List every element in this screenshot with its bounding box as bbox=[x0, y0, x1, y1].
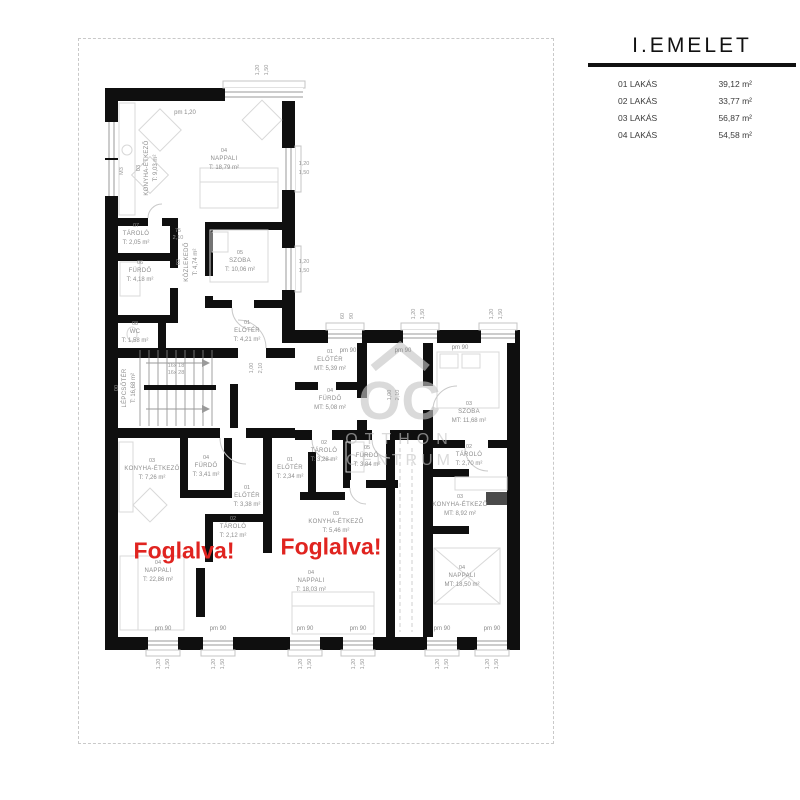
room-label: 03KONYHA-ÉTKEZŐT: 9,03 m² bbox=[136, 140, 160, 195]
room-area: T: 16,68 m² bbox=[130, 368, 138, 407]
room-name: SZOBA bbox=[225, 258, 255, 266]
legend-rows: 01 LAKÁS 39,12 m² 02 LAKÁS 33,77 m² 03 L… bbox=[588, 75, 796, 143]
room-id: 01 bbox=[277, 457, 304, 464]
room-id: 08 bbox=[122, 321, 149, 328]
room-area: T: 3,41 m² bbox=[193, 471, 220, 479]
dimension-label: 1,50 bbox=[498, 309, 504, 320]
room-area: T: 2,34 m² bbox=[277, 473, 304, 481]
room-id: 03 bbox=[452, 401, 487, 408]
dimension-label: 1,00 bbox=[249, 363, 255, 374]
room-label: 02TÁROLÓT: 2,12 m² bbox=[220, 516, 247, 540]
dimension-label: 1,50 bbox=[220, 659, 226, 670]
room-area: T: 22,86 m² bbox=[143, 576, 173, 584]
dimension-label: 90 bbox=[349, 313, 355, 319]
room-area: T: 10,06 m² bbox=[225, 266, 255, 274]
room-id: 02 bbox=[311, 440, 338, 447]
dimension-label: 1,50 bbox=[420, 309, 426, 320]
parapet-label: pm 90 bbox=[395, 348, 412, 354]
room-label: 06FÜRDŐT: 4,18 m² bbox=[127, 260, 154, 284]
dimension-label: 1,20 bbox=[489, 309, 495, 320]
dimension-label: 1,50 bbox=[307, 659, 313, 670]
parapet-label: pm 90 bbox=[434, 626, 451, 632]
room-label: 02KÖZLEKEDŐT: 4,74 m² bbox=[176, 242, 200, 281]
dimension-label: 2,10 bbox=[395, 390, 401, 401]
room-area: T: 2,70 m² bbox=[456, 460, 483, 468]
room-name: FÜRDŐ bbox=[193, 463, 220, 471]
apartment-label: 04 LAKÁS bbox=[618, 130, 657, 140]
room-id: 04 bbox=[296, 570, 326, 577]
room-area: MT: 5,08 m² bbox=[314, 404, 346, 412]
room-label: 04FÜRDŐMT: 5,08 m² bbox=[314, 388, 346, 412]
room-id: 02 bbox=[456, 444, 483, 451]
room-area: MT: 8,92 m² bbox=[432, 510, 487, 518]
dimension-label: 1,50 bbox=[444, 659, 450, 670]
room-area: T: 18,79 m² bbox=[209, 164, 239, 172]
room-label: 08WCT: 1,58 m² bbox=[122, 321, 149, 345]
parapet-label: pm 90 bbox=[210, 626, 227, 632]
room-area: T: 1,58 m² bbox=[122, 337, 149, 345]
dimension-label: 1,20 bbox=[411, 309, 417, 320]
parapet-label: pm 90 bbox=[155, 626, 172, 632]
room-id: 03 bbox=[432, 494, 487, 501]
counter-block bbox=[486, 492, 507, 505]
legend-divider bbox=[588, 63, 796, 67]
room-id: 04 bbox=[444, 565, 479, 572]
apartment-area: 39,12 m² bbox=[718, 79, 752, 89]
room-area: T: 4,21 m² bbox=[234, 336, 261, 344]
room-label: 03KONYHA-ÉTKEZŐMT: 8,92 m² bbox=[432, 494, 487, 518]
room-label: 03KONYHA-ÉTKEZŐT: 7,26 m² bbox=[124, 458, 179, 482]
parapet-label: pm 90 bbox=[340, 348, 357, 354]
room-label: 03KONYHA-ÉTKEZŐT: 5,46 m² bbox=[308, 511, 363, 535]
room-area: T: 3,38 m² bbox=[234, 501, 261, 509]
room-area: MT: 11,68 m² bbox=[452, 417, 487, 425]
room-id: 07 bbox=[123, 223, 150, 230]
apartment-label: 02 LAKÁS bbox=[618, 96, 657, 106]
room-id: 01 bbox=[234, 320, 261, 327]
room-label: 01ELŐTÉRT: 2,34 m² bbox=[277, 457, 304, 481]
room-label: 04NAPPALIT: 18,79 m² bbox=[209, 148, 239, 172]
dimension-label: 1,20 bbox=[211, 659, 217, 670]
apartment-label: 03 LAKÁS bbox=[618, 113, 657, 123]
room-id: 02 bbox=[220, 516, 247, 523]
room-id: 04 bbox=[314, 388, 346, 395]
room-area: T: 2,05 m² bbox=[123, 239, 150, 247]
legend-row: 02 LAKÁS 33,77 m² bbox=[588, 92, 796, 109]
room-name: KÖZLEKEDŐ bbox=[184, 242, 192, 281]
room-name: TÁROLÓ bbox=[456, 452, 483, 460]
reserved-stamp: Foglalva! bbox=[134, 538, 235, 565]
room-name: ELŐTÉR bbox=[277, 465, 304, 473]
room-id: 05 bbox=[225, 250, 255, 257]
dimension-label: 2,10 bbox=[173, 235, 184, 241]
room-label: 05FÜRDŐT: 3,84 m² bbox=[354, 445, 381, 469]
dimension-label: 1,20 bbox=[298, 659, 304, 670]
room-name: NAPPALI bbox=[143, 568, 173, 576]
room-area: T: 4,18 m² bbox=[127, 276, 154, 284]
room-label: 04NAPPALIMT: 18,50 m² bbox=[444, 565, 479, 589]
room-label: 02TÁROLÓT: 3,28 m² bbox=[311, 440, 338, 464]
legend-row: 03 LAKÁS 56,87 m² bbox=[588, 109, 796, 126]
room-name: KONYHA-ÉTKEZŐ bbox=[124, 466, 179, 474]
room-name: FÜRDŐ bbox=[354, 453, 381, 461]
room-name: FÜRDŐ bbox=[314, 396, 346, 404]
room-name: NAPPALI bbox=[209, 156, 239, 164]
room-name: FÜRDŐ bbox=[127, 268, 154, 276]
room-name: WC bbox=[122, 329, 149, 337]
dimension-label: 1,20 bbox=[351, 659, 357, 670]
dimension-label: 1,20 bbox=[255, 65, 261, 76]
dimension-label: 1,50 bbox=[494, 659, 500, 670]
dimension-label: 1,20 bbox=[299, 161, 310, 167]
room-area: T: 7,26 m² bbox=[124, 474, 179, 482]
room-area: MT: 18,50 m² bbox=[444, 581, 479, 589]
room-label: 04FÜRDŐT: 3,41 m² bbox=[193, 455, 220, 479]
room-label: 03SZOBAMT: 11,68 m² bbox=[452, 401, 487, 425]
room-label: 01ELŐTÉRT: 4,21 m² bbox=[234, 320, 261, 344]
parapet-label: pm 90 bbox=[484, 626, 501, 632]
room-name: TÁROLÓ bbox=[311, 448, 338, 456]
room-id: 03 bbox=[308, 511, 363, 518]
room-name: LÉPCSŐTÉR bbox=[122, 368, 130, 407]
room-name: KONYHA-ÉTKEZŐ bbox=[308, 519, 363, 527]
room-label: 01ELŐTÉRT: 3,38 m² bbox=[234, 485, 261, 509]
room-id: 04 bbox=[209, 148, 239, 155]
dimension-label: 1,20 bbox=[485, 659, 491, 670]
room-name: ELŐTÉR bbox=[234, 493, 261, 501]
dimension-label: 1,50 bbox=[165, 659, 171, 670]
room-name: KONYHA-ÉTKEZŐ bbox=[144, 140, 152, 195]
dimension-label: 1,00 bbox=[387, 390, 393, 401]
room-name: NAPPALI bbox=[296, 578, 326, 586]
room-name: KONYHA-ÉTKEZŐ bbox=[432, 502, 487, 510]
apartment-area: 33,77 m² bbox=[718, 96, 752, 106]
room-label: 04NAPPALIT: 18,03 m² bbox=[296, 570, 326, 594]
dimension-label: 75 bbox=[175, 228, 181, 234]
room-name: ELŐTÉR bbox=[314, 357, 346, 365]
room-id: 06 bbox=[127, 260, 154, 267]
room-id: 01 bbox=[234, 485, 261, 492]
page: OC OTTHON CENTRUM 03KONYHA-ÉTKEZŐT: 9,03… bbox=[0, 0, 800, 800]
staircase bbox=[140, 350, 216, 426]
room-id: 05 bbox=[354, 445, 381, 452]
room-name: SZOBA bbox=[452, 409, 487, 417]
room-area: MT: 5,39 m² bbox=[314, 365, 346, 373]
reserved-stamp: Foglalva! bbox=[281, 534, 382, 561]
legend-title: I.EMELET bbox=[588, 34, 796, 58]
dimension-label: 2,10 bbox=[258, 363, 264, 374]
parapet-label: pm 90 bbox=[350, 626, 367, 632]
dimension-label: 1,50 bbox=[299, 170, 310, 176]
room-area: T: 4,74 m² bbox=[192, 242, 200, 281]
room-name: TÁROLÓ bbox=[220, 524, 247, 532]
parapet-label: pm 90 bbox=[452, 345, 469, 351]
room-id: 00 bbox=[114, 368, 121, 407]
room-name: NAPPALI bbox=[444, 573, 479, 581]
room-id: 03 bbox=[124, 458, 179, 465]
apartment-label: 01 LAKÁS bbox=[618, 79, 657, 89]
room-id: 04 bbox=[193, 455, 220, 462]
apartment-area: 54,58 m² bbox=[718, 130, 752, 140]
room-name: TÁROLÓ bbox=[123, 231, 150, 239]
legend-row: 04 LAKÁS 54,58 m² bbox=[588, 126, 796, 143]
dimension-label: 1,20 bbox=[156, 659, 162, 670]
room-label: 02TÁROLÓT: 2,70 m² bbox=[456, 444, 483, 468]
dimension-label: 60 bbox=[340, 313, 346, 319]
legend-row: 01 LAKÁS 39,12 m² bbox=[588, 75, 796, 92]
room-label: 00LÉPCSŐTÉRT: 16,68 m² bbox=[114, 368, 138, 407]
legend: I.EMELET 01 LAKÁS 39,12 m² 02 LAKÁS 33,7… bbox=[588, 34, 796, 143]
apartment-area: 56,87 m² bbox=[718, 113, 752, 123]
room-id: 02 bbox=[176, 242, 183, 281]
dimension-label: 1,20 bbox=[435, 659, 441, 670]
room-area: T: 3,28 m² bbox=[311, 456, 338, 464]
room-id: 03 bbox=[136, 140, 143, 195]
dimension-label: 1,50 bbox=[264, 65, 270, 76]
parapet-label: pm 1,20 bbox=[174, 110, 196, 116]
room-area: T: 9,03 m² bbox=[152, 140, 160, 195]
dimension-label: 1,20 bbox=[299, 259, 310, 265]
dimension-label: 1,50 bbox=[299, 268, 310, 274]
room-area: T: 3,84 m² bbox=[354, 461, 381, 469]
dimension-label: 16x 28 bbox=[168, 370, 185, 376]
room-name: ELŐTÉR bbox=[234, 328, 261, 336]
room-label: 05SZOBAT: 10,06 m² bbox=[225, 250, 255, 274]
dimension-label: M3 bbox=[119, 167, 125, 175]
dimension-label: 16x 18 bbox=[168, 363, 185, 369]
room-label: 07TÁROLÓT: 2,05 m² bbox=[123, 223, 150, 247]
room-area: T: 18,03 m² bbox=[296, 586, 326, 594]
dimension-label: 1,50 bbox=[360, 659, 366, 670]
parapet-label: pm 90 bbox=[297, 626, 314, 632]
